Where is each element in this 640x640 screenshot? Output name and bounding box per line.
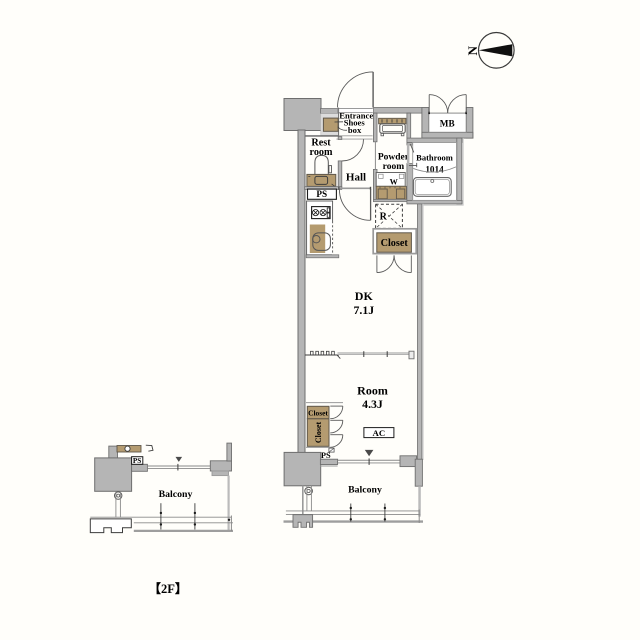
- svg-text:DK: DK: [355, 289, 374, 303]
- svg-text:box: box: [348, 125, 362, 135]
- svg-text:Closet: Closet: [314, 422, 323, 444]
- svg-text:PS: PS: [133, 457, 141, 465]
- svg-text:AC: AC: [373, 428, 386, 438]
- svg-text:room: room: [383, 162, 405, 172]
- svg-text:1014: 1014: [425, 165, 444, 175]
- svg-text:Closet: Closet: [308, 408, 328, 417]
- svg-text:N: N: [465, 45, 480, 55]
- svg-text:Hall: Hall: [346, 172, 366, 184]
- svg-text:R: R: [380, 212, 388, 223]
- svg-text:Balcony: Balcony: [159, 489, 193, 500]
- svg-text:PS: PS: [316, 189, 327, 199]
- svg-text:4.3J: 4.3J: [362, 397, 383, 411]
- svg-text:Bathroom: Bathroom: [416, 153, 453, 163]
- svg-text:room: room: [309, 147, 333, 158]
- svg-text:W: W: [390, 177, 399, 186]
- svg-text:Closet: Closet: [381, 238, 409, 249]
- svg-text:【2F】: 【2F】: [149, 581, 188, 596]
- svg-text:Balcony: Balcony: [348, 484, 382, 495]
- svg-text:PS: PS: [321, 451, 331, 460]
- svg-text:Room: Room: [357, 383, 388, 397]
- svg-text:7.1J: 7.1J: [353, 303, 374, 317]
- svg-text:MB: MB: [440, 118, 455, 128]
